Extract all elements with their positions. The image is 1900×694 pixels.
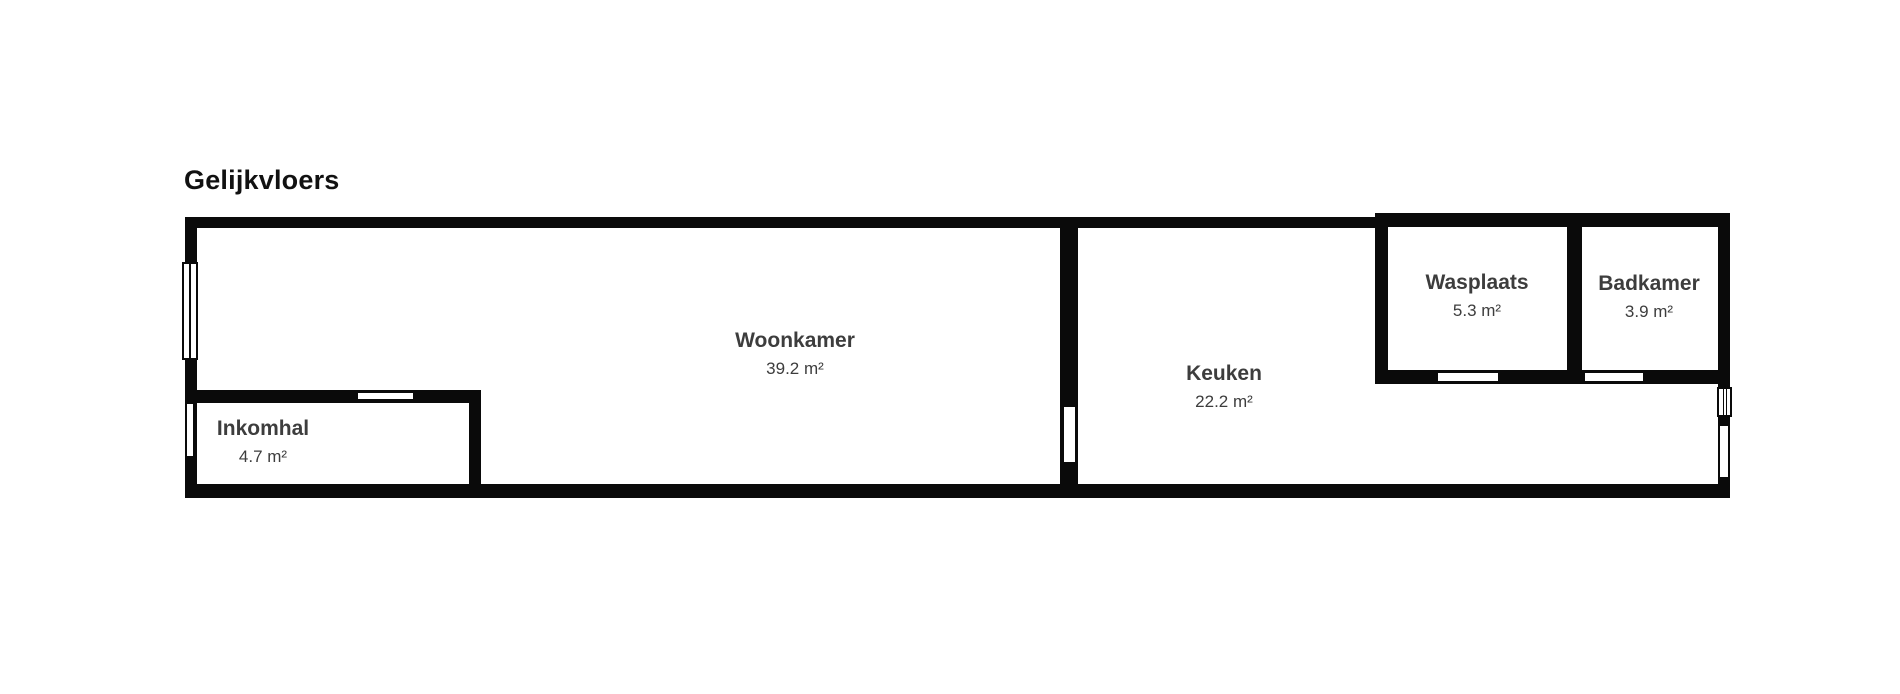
room-label-woonkamer: Woonkamer 39.2 m² (735, 330, 855, 378)
floorplan-canvas: Gelijkvloers Woonkamer (0, 0, 1900, 694)
outer-wall-top (185, 217, 1375, 228)
block-wall-bottom (1375, 370, 1730, 384)
room-name: Badkamer (1598, 273, 1700, 295)
room-label-badkamer: Badkamer 3.9 m² (1598, 273, 1700, 321)
keuken-window-right-upper (1717, 387, 1732, 417)
keuken-window-right-lower (1719, 425, 1729, 478)
wasplaats-door-opening (1438, 373, 1498, 381)
outer-wall-bottom (185, 484, 1730, 498)
inkomhal-wall-top (185, 390, 481, 403)
room-label-inkomhal: Inkomhal 4.7 m² (217, 418, 309, 466)
window-pane-line (1726, 389, 1727, 415)
room-name: Wasplaats (1425, 272, 1528, 294)
room-area: 4.7 m² (217, 448, 309, 466)
room-label-keuken: Keuken 22.2 m² (1186, 363, 1262, 411)
block-wall-left (1375, 213, 1388, 384)
floor-title: Gelijkvloers (184, 165, 340, 196)
room-area: 39.2 m² (735, 360, 855, 378)
woonkamer-window-left (182, 262, 198, 360)
room-area: 22.2 m² (1186, 393, 1262, 411)
room-name: Keuken (1186, 363, 1262, 385)
window-pane-line (1723, 389, 1724, 415)
inkomhal-door-opening (358, 393, 413, 399)
room-name: Inkomhal (217, 418, 309, 440)
inkomhal-wall-right (469, 390, 481, 498)
room-area: 5.3 m² (1425, 302, 1528, 320)
inkomhal-window-left (186, 403, 194, 457)
wasplaats-badkamer-divider-wall (1567, 227, 1582, 370)
room-area: 3.9 m² (1598, 303, 1700, 321)
room-label-wasplaats: Wasplaats 5.3 m² (1425, 272, 1528, 320)
keuken-door-opening (1064, 407, 1075, 462)
block-wall-top (1375, 213, 1730, 227)
badkamer-door-opening (1585, 373, 1643, 381)
room-name: Woonkamer (735, 330, 855, 352)
window-pane-line (189, 264, 191, 358)
